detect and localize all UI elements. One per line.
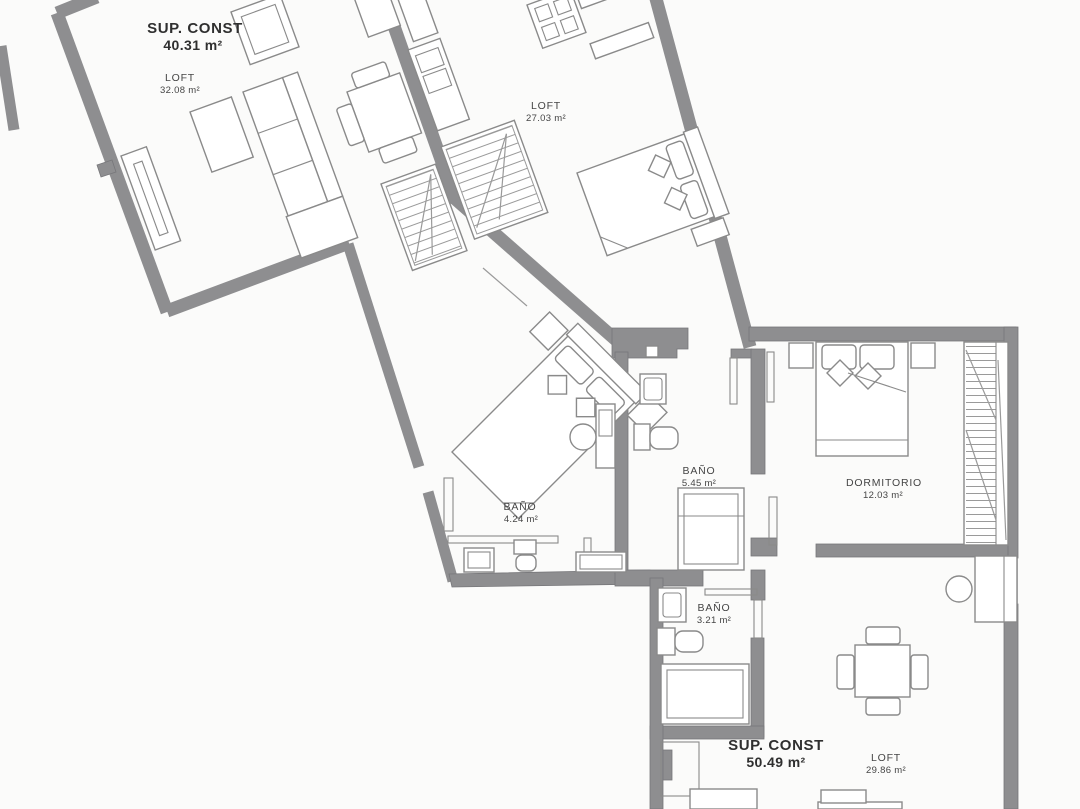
label-dorm-line2: 12.03 m² (863, 490, 903, 501)
nightstand (789, 343, 813, 368)
chair (837, 655, 854, 689)
sofa-unitC (818, 790, 902, 809)
door-leaf-entry (730, 358, 737, 404)
sofa (241, 72, 358, 258)
label-bathC-line1: BAÑO (683, 464, 716, 477)
label-unitB-bath-line2: 4.24 m² (504, 514, 538, 525)
label-unitB-bath-line1: BAÑO (504, 500, 537, 513)
shower (678, 488, 744, 570)
wall-unitA-bottom (167, 243, 349, 311)
label-dorm-line1: DORMITORIO (846, 477, 922, 489)
toilet-tank (514, 540, 536, 554)
wall-top-right (749, 327, 1016, 341)
toilet-bowl (650, 427, 678, 449)
dorm-furniture (789, 342, 1008, 545)
chair (866, 627, 900, 644)
door-leaf-bathD (705, 589, 757, 595)
wall-dorm-bottom (816, 544, 1008, 557)
wall-divider-bath-dorm (751, 349, 765, 474)
bed-unitC (690, 789, 757, 809)
wardrobe (964, 342, 1008, 545)
label-bathD-line1: BAÑO (698, 601, 731, 614)
label-unitA-room-line2: 32.08 m² (160, 85, 200, 96)
wall-bathD-right (751, 638, 764, 737)
label-unitA-room-line1: LOFT (165, 72, 195, 84)
wall-entry-stub (731, 349, 752, 358)
label-bathC-line2: 5.45 m² (682, 478, 716, 489)
wall-gap-inset (646, 346, 658, 357)
wall-unitA-top-stub (57, 0, 97, 13)
floor-plan-page: SUP. CONST 40.31 m² LOFT 32.08 m² LOFT 2… (0, 0, 1080, 809)
chair (911, 655, 928, 689)
dining-set-unitC (837, 627, 928, 715)
shower (661, 664, 749, 724)
glass-panel-bathD (754, 600, 762, 638)
wall-fragment-left-edge (1, 46, 14, 130)
wall-right-lower (1004, 604, 1018, 809)
chair (866, 698, 900, 715)
label-unitC-room-line1: LOFT (871, 752, 901, 764)
dining-table (855, 645, 910, 697)
label-unitA-sup-line1: SUP. CONST (147, 20, 243, 37)
door-leaf-corridor (483, 268, 527, 306)
toilet-tank (634, 424, 650, 450)
label-unitA-sup-line2: 40.31 m² (163, 37, 222, 53)
bathB-fixtures (464, 540, 626, 572)
label-unitC-room-line2: 29.86 m² (866, 765, 906, 776)
wall-unitB-left-upper (348, 244, 419, 467)
bed-unitB-upper (576, 127, 736, 276)
wall-unitC-left-bump (663, 750, 672, 780)
label-unitB-room-line2: 27.03 m² (526, 113, 566, 124)
label-bathD-line2: 3.21 m² (697, 615, 731, 626)
door-leaf-bathC (767, 352, 774, 402)
label-unitC-sup-line1: SUP. CONST (728, 737, 824, 754)
chair (946, 576, 972, 602)
wall-divider-stub (751, 538, 777, 556)
desk-unitC (946, 556, 1017, 622)
label-unitB-room-line1: LOFT (531, 100, 561, 112)
floor-plan: SUP. CONST 40.31 m² LOFT 32.08 m² LOFT 2… (0, 0, 1080, 809)
chair (570, 424, 596, 450)
toilet-bowl (675, 631, 703, 652)
label-unitC-sup-line2: 50.49 m² (746, 754, 805, 770)
partition-bathB (448, 536, 558, 543)
toilet-bowl (516, 555, 536, 571)
toilet-tank (657, 628, 675, 655)
kitchen-block-unitB (525, 0, 654, 75)
coffee-table (190, 97, 253, 172)
door-leaf-unitB-left (444, 478, 453, 531)
nightstand (911, 343, 935, 368)
